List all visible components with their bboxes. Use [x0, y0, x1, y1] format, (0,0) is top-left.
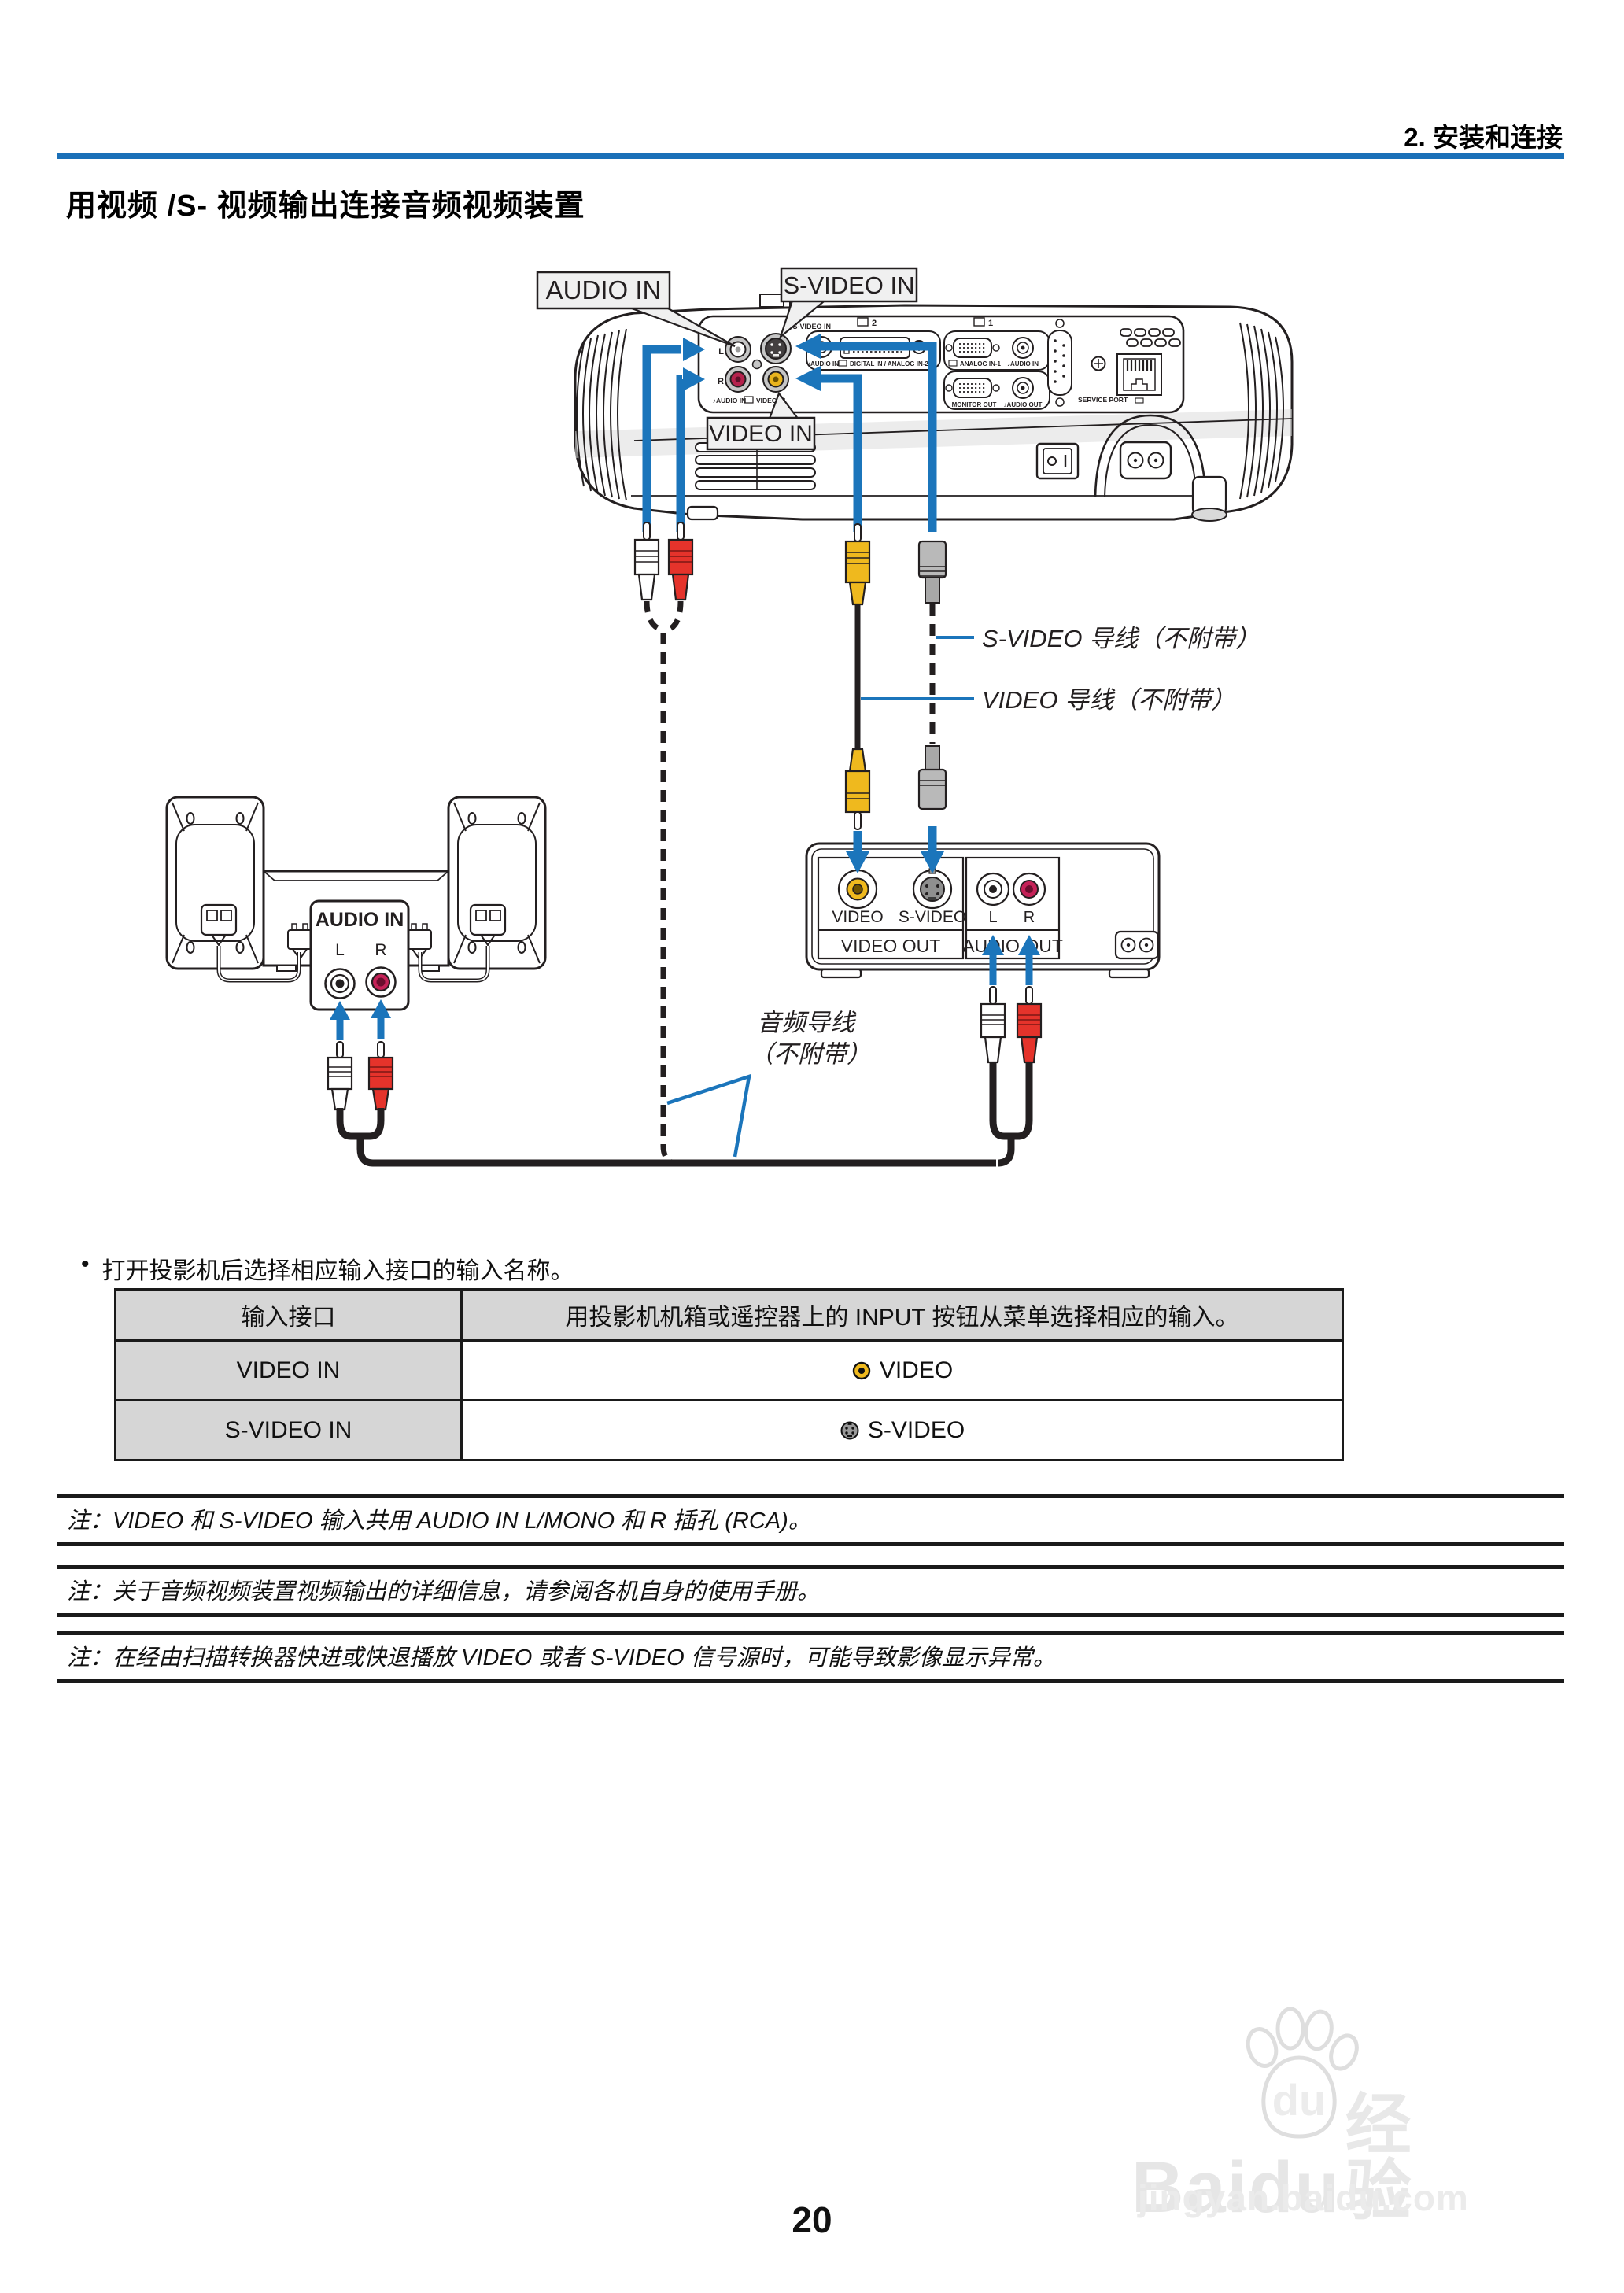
port-label-r: R: [718, 377, 724, 386]
port-label-analog-in1: ANALOG IN-1: [960, 360, 1002, 367]
svideo-cable-label: S-VIDEO 导线（不附带）: [982, 625, 1260, 652]
speaker-right: [448, 797, 545, 969]
port-label-digital-in: DIGITAL IN / ANALOG IN-2: [850, 360, 928, 367]
port-label-audio-mid: ♪AUDIO IN: [807, 360, 839, 367]
manual-page: 2. 安装和连接 用视频 /S- 视频输出连接音频视频装置: [0, 0, 1624, 2293]
svg-text:VIDEO IN: VIDEO IN: [709, 421, 813, 447]
amp-end-plugs: [328, 1042, 393, 1110]
video-cable: [846, 524, 869, 829]
input-selection-table: 输入接口 用投影机机箱或遥控器上的 INPUT 按钮从菜单选择相应的输入。 VI…: [114, 1288, 1344, 1461]
table-cell-port: S-VIDEO IN: [116, 1401, 463, 1459]
table-header-row: 输入接口 用投影机机箱或遥控器上的 INPUT 按钮从菜单选择相应的输入。: [116, 1291, 1342, 1339]
baidu-jingyan-watermark: du Baidu 经验 jingyan.baidu.com: [1131, 2043, 1470, 2224]
note-1: 注：VIDEO 和 S-VIDEO 输入共用 AUDIO IN L/MONO 和…: [57, 1494, 1564, 1546]
audio-cable-dashed: [663, 633, 674, 1163]
table-row: VIDEO IN VIDEO: [116, 1339, 1342, 1399]
port-label-display2: 2: [872, 319, 877, 328]
port-label-audio-out: ♪AUDIO OUT: [1004, 401, 1043, 408]
table-header-input: 用投影机机箱或遥控器上的 INPUT 按钮从菜单选择相应的输入。: [463, 1291, 1342, 1339]
table-cell-input: VIDEO: [463, 1342, 1342, 1399]
projector-monitor-out-group: MONITOR OUT ♪AUDIO OUT: [944, 371, 1050, 409]
page-number: 20: [733, 2199, 891, 2241]
av-video-label: VIDEO: [832, 908, 883, 926]
av-r-label: R: [1024, 909, 1035, 926]
svg-text:S-VIDEO IN: S-VIDEO IN: [783, 271, 914, 299]
connection-diagram: L R Ⓢ S-VIDEO IN ♪AUDIO IN VIDEO IN ♪AUD…: [0, 0, 1624, 1228]
svg-text:AUDIO IN: AUDIO IN: [546, 275, 662, 305]
av-video-out-label: VIDEO OUT: [841, 936, 941, 956]
amp-audio-in-panel: AUDIO IN L R: [311, 901, 408, 1010]
power-switch: [1037, 444, 1078, 478]
audio-cable-label-1: 音频导线: [757, 1009, 857, 1036]
video-rca-icon: [851, 1361, 872, 1381]
port-label-l: L: [718, 347, 724, 356]
bullet-marker: •: [81, 1251, 90, 1286]
table-cell-input: S-VIDEO: [463, 1401, 1342, 1459]
port-label-service: SERVICE PORT: [1078, 396, 1128, 404]
av-audio-out-label: AUDIO OUT: [962, 936, 1063, 956]
projector-foot-right: [1192, 477, 1227, 521]
audio-out-panel: L R AUDIO OUT: [962, 858, 1063, 958]
amp-r-label: R: [375, 941, 386, 959]
av-l-label: L: [988, 909, 997, 926]
table-cell-port: VIDEO IN: [116, 1342, 463, 1399]
svideo-din-icon: [840, 1420, 860, 1441]
port-label-audio-right: ♪AUDIO IN: [1007, 360, 1039, 367]
projector-foot-left: [688, 507, 718, 519]
speaker-left: [167, 797, 264, 969]
note-2: 注：关于音频视频装置视频输出的详细信息，请参阅各机自身的使用手册。: [57, 1565, 1564, 1617]
amp-audio-in-label: AUDIO IN: [316, 909, 404, 931]
video-cable-label: VIDEO 导线（不附带）: [982, 686, 1235, 714]
table-header-port: 输入接口: [116, 1291, 463, 1339]
table-row: S-VIDEO IN S-VIDEO: [116, 1399, 1342, 1459]
amp-l-label: L: [335, 941, 345, 959]
svideo-cable: [919, 541, 946, 809]
video-out-panel: VIDEO S-VIDEO VIDEO OUT: [818, 858, 966, 958]
audio-cable-projector-end: [635, 522, 692, 1163]
rca-plug-white: [635, 540, 659, 574]
bullet-text: 打开投影机后选择相应输入接口的输入名称。: [102, 1251, 574, 1286]
audio-cable-label-2: （不附带）: [749, 1040, 871, 1068]
av-svideo-label: S-VIDEO: [899, 908, 966, 926]
port-label-display1: 1: [988, 319, 993, 328]
ac-inlet-av: [1116, 932, 1158, 958]
port-label-audio-lr: ♪AUDIO IN: [713, 397, 747, 404]
rca-plug-red: [669, 540, 692, 574]
note-3: 注：在经由扫描转换器快进或快退播放 VIDEO 或者 S-VIDEO 信号源时，…: [57, 1631, 1564, 1683]
bullet-line: • 打开投影机后选择相应输入接口的输入名称。: [81, 1251, 574, 1286]
audio-cable-bottom: [340, 1062, 1029, 1163]
ac-inlet-projector: [1120, 442, 1171, 478]
av-end-plugs: [981, 987, 1041, 1062]
watermark-url: jingyan.baidu.com: [1138, 2177, 1469, 2219]
port-label-monitor-out: MONITOR OUT: [952, 401, 997, 408]
